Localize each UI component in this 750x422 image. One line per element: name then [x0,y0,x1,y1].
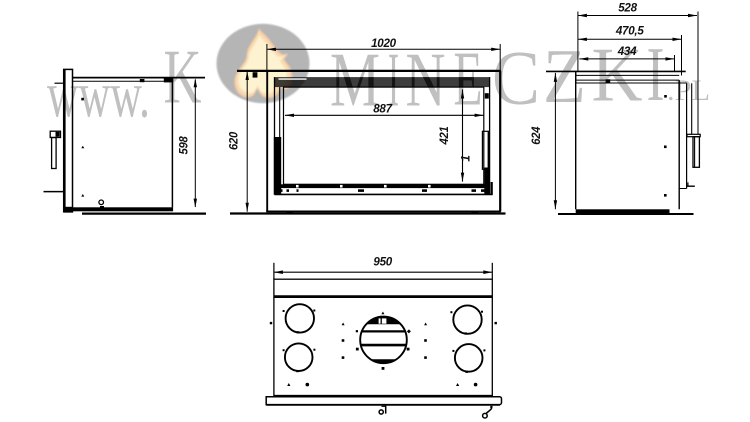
svg-text:950: 950 [373,255,392,268]
svg-text:.PL: .PL [667,74,710,107]
svg-text:421: 421 [438,127,451,146]
svg-text:K: K [592,32,643,118]
svg-text:Z: Z [543,33,586,119]
svg-text:I: I [647,31,665,117]
svg-text:K: K [164,34,202,120]
svg-text:C: C [492,34,540,120]
svg-text:528: 528 [618,1,637,14]
svg-text:1: 1 [459,155,472,161]
svg-text:624: 624 [530,126,543,145]
svg-text:620: 620 [227,131,240,150]
svg-text:598: 598 [178,136,191,155]
svg-text:www.: www. [47,59,150,132]
